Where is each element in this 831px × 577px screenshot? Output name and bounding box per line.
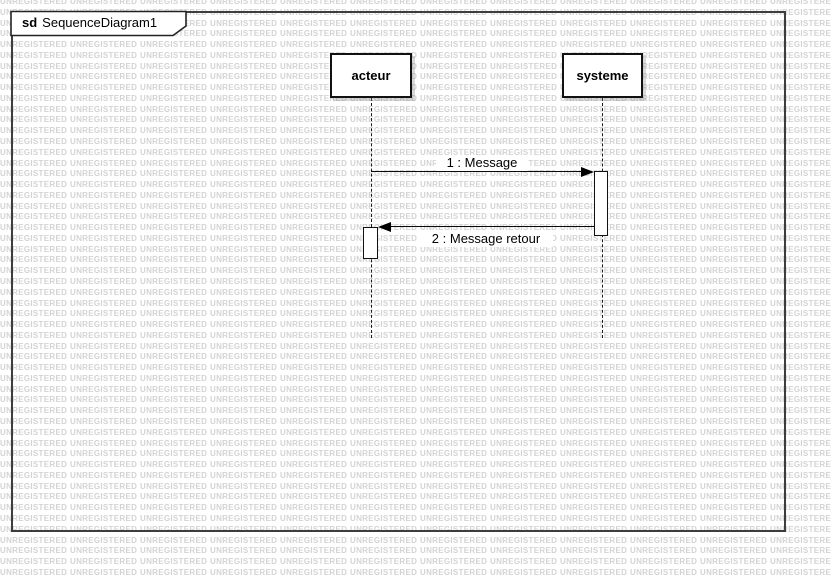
- watermark-text: UNREGISTERED: [560, 546, 627, 555]
- activation-systeme[interactable]: [594, 171, 608, 236]
- watermark-text: UNREGISTERED: [770, 557, 831, 566]
- watermark-text: UNREGISTERED: [0, 568, 67, 577]
- watermark-text: UNREGISTERED: [770, 536, 831, 545]
- watermark-text: UNREGISTERED: [140, 557, 207, 566]
- lifeline-systeme-name: systeme: [576, 68, 628, 83]
- lifeline-acteur-name: acteur: [351, 68, 390, 83]
- watermark-text: UNREGISTERED: [210, 546, 277, 555]
- watermark-text: UNREGISTERED: [210, 568, 277, 577]
- watermark-text: UNREGISTERED: [0, 546, 67, 555]
- watermark-text: UNREGISTERED: [350, 568, 417, 577]
- watermark-text: UNREGISTERED: [70, 557, 137, 566]
- watermark-text: UNREGISTERED: [70, 568, 137, 577]
- lifeline-acteur-head[interactable]: acteur: [330, 53, 412, 98]
- watermark-text: UNREGISTERED: [420, 0, 487, 6]
- watermark-text: UNREGISTERED: [420, 568, 487, 577]
- watermark-text: UNREGISTERED: [700, 557, 767, 566]
- watermark-text: UNREGISTERED: [210, 557, 277, 566]
- watermark-text: UNREGISTERED: [0, 536, 67, 545]
- watermark-text: UNREGISTERED: [560, 557, 627, 566]
- message-2-label[interactable]: 2 : Message retour: [419, 231, 553, 247]
- watermark-text: UNREGISTERED: [350, 546, 417, 555]
- watermark-text: UNREGISTERED: [700, 546, 767, 555]
- message-2-line[interactable]: [391, 226, 594, 227]
- watermark-text: UNREGISTERED: [0, 0, 67, 6]
- watermark-text: UNREGISTERED: [350, 0, 417, 6]
- sequence-diagram-canvas: UNREGISTEREDUNREGISTEREDUNREGISTEREDUNRE…: [0, 0, 831, 577]
- watermark-text: UNREGISTERED: [700, 536, 767, 545]
- watermark-text: UNREGISTERED: [560, 568, 627, 577]
- watermark-text: UNREGISTERED: [420, 557, 487, 566]
- watermark-text: UNREGISTERED: [70, 0, 137, 6]
- frame-name: SequenceDiagram1: [42, 15, 157, 30]
- watermark-text: UNREGISTERED: [490, 557, 557, 566]
- watermark-text: UNREGISTERED: [700, 568, 767, 577]
- watermark-text: UNREGISTERED: [280, 546, 347, 555]
- watermark-text: UNREGISTERED: [560, 536, 627, 545]
- watermark-text: UNREGISTERED: [0, 557, 67, 566]
- watermark-text: UNREGISTERED: [700, 0, 767, 6]
- lifeline-acteur-line[interactable]: [371, 98, 372, 338]
- watermark-text: UNREGISTERED: [140, 0, 207, 6]
- message-2-arrowhead-icon: [378, 222, 391, 232]
- watermark-text: UNREGISTERED: [490, 0, 557, 6]
- watermark-text: UNREGISTERED: [280, 568, 347, 577]
- watermark-text: UNREGISTERED: [490, 546, 557, 555]
- watermark-text: UNREGISTERED: [420, 536, 487, 545]
- watermark-text: UNREGISTERED: [770, 0, 831, 6]
- watermark-text: UNREGISTERED: [630, 568, 697, 577]
- watermark-text: UNREGISTERED: [770, 568, 831, 577]
- watermark-text: UNREGISTERED: [630, 0, 697, 6]
- watermark-text: UNREGISTERED: [630, 536, 697, 545]
- message-1-line[interactable]: [371, 171, 582, 172]
- frame-keyword: sd: [22, 15, 37, 30]
- frame-title: sdSequenceDiagram1: [22, 15, 157, 30]
- watermark-text: UNREGISTERED: [490, 536, 557, 545]
- message-1-arrowhead-icon: [581, 167, 594, 177]
- message-1-label[interactable]: 1 : Message: [436, 155, 528, 171]
- watermark-text: UNREGISTERED: [140, 546, 207, 555]
- watermark-text: UNREGISTERED: [140, 536, 207, 545]
- watermark-text: UNREGISTERED: [70, 546, 137, 555]
- watermark-text: UNREGISTERED: [140, 568, 207, 577]
- lifeline-systeme-head[interactable]: systeme: [562, 53, 643, 98]
- activation-acteur[interactable]: [363, 227, 378, 259]
- watermark-text: UNREGISTERED: [770, 546, 831, 555]
- watermark-text: UNREGISTERED: [630, 546, 697, 555]
- watermark-text: UNREGISTERED: [280, 0, 347, 6]
- watermark-text: UNREGISTERED: [420, 546, 487, 555]
- watermark-text: UNREGISTERED: [210, 536, 277, 545]
- watermark-text: UNREGISTERED: [490, 568, 557, 577]
- watermark-text: UNREGISTERED: [210, 0, 277, 6]
- watermark-text: UNREGISTERED: [350, 536, 417, 545]
- watermark-text: UNREGISTERED: [280, 536, 347, 545]
- watermark-text: UNREGISTERED: [70, 536, 137, 545]
- watermark-text: UNREGISTERED: [280, 557, 347, 566]
- watermark-text: UNREGISTERED: [560, 0, 627, 6]
- watermark-text: UNREGISTERED: [350, 557, 417, 566]
- watermark-text: UNREGISTERED: [630, 557, 697, 566]
